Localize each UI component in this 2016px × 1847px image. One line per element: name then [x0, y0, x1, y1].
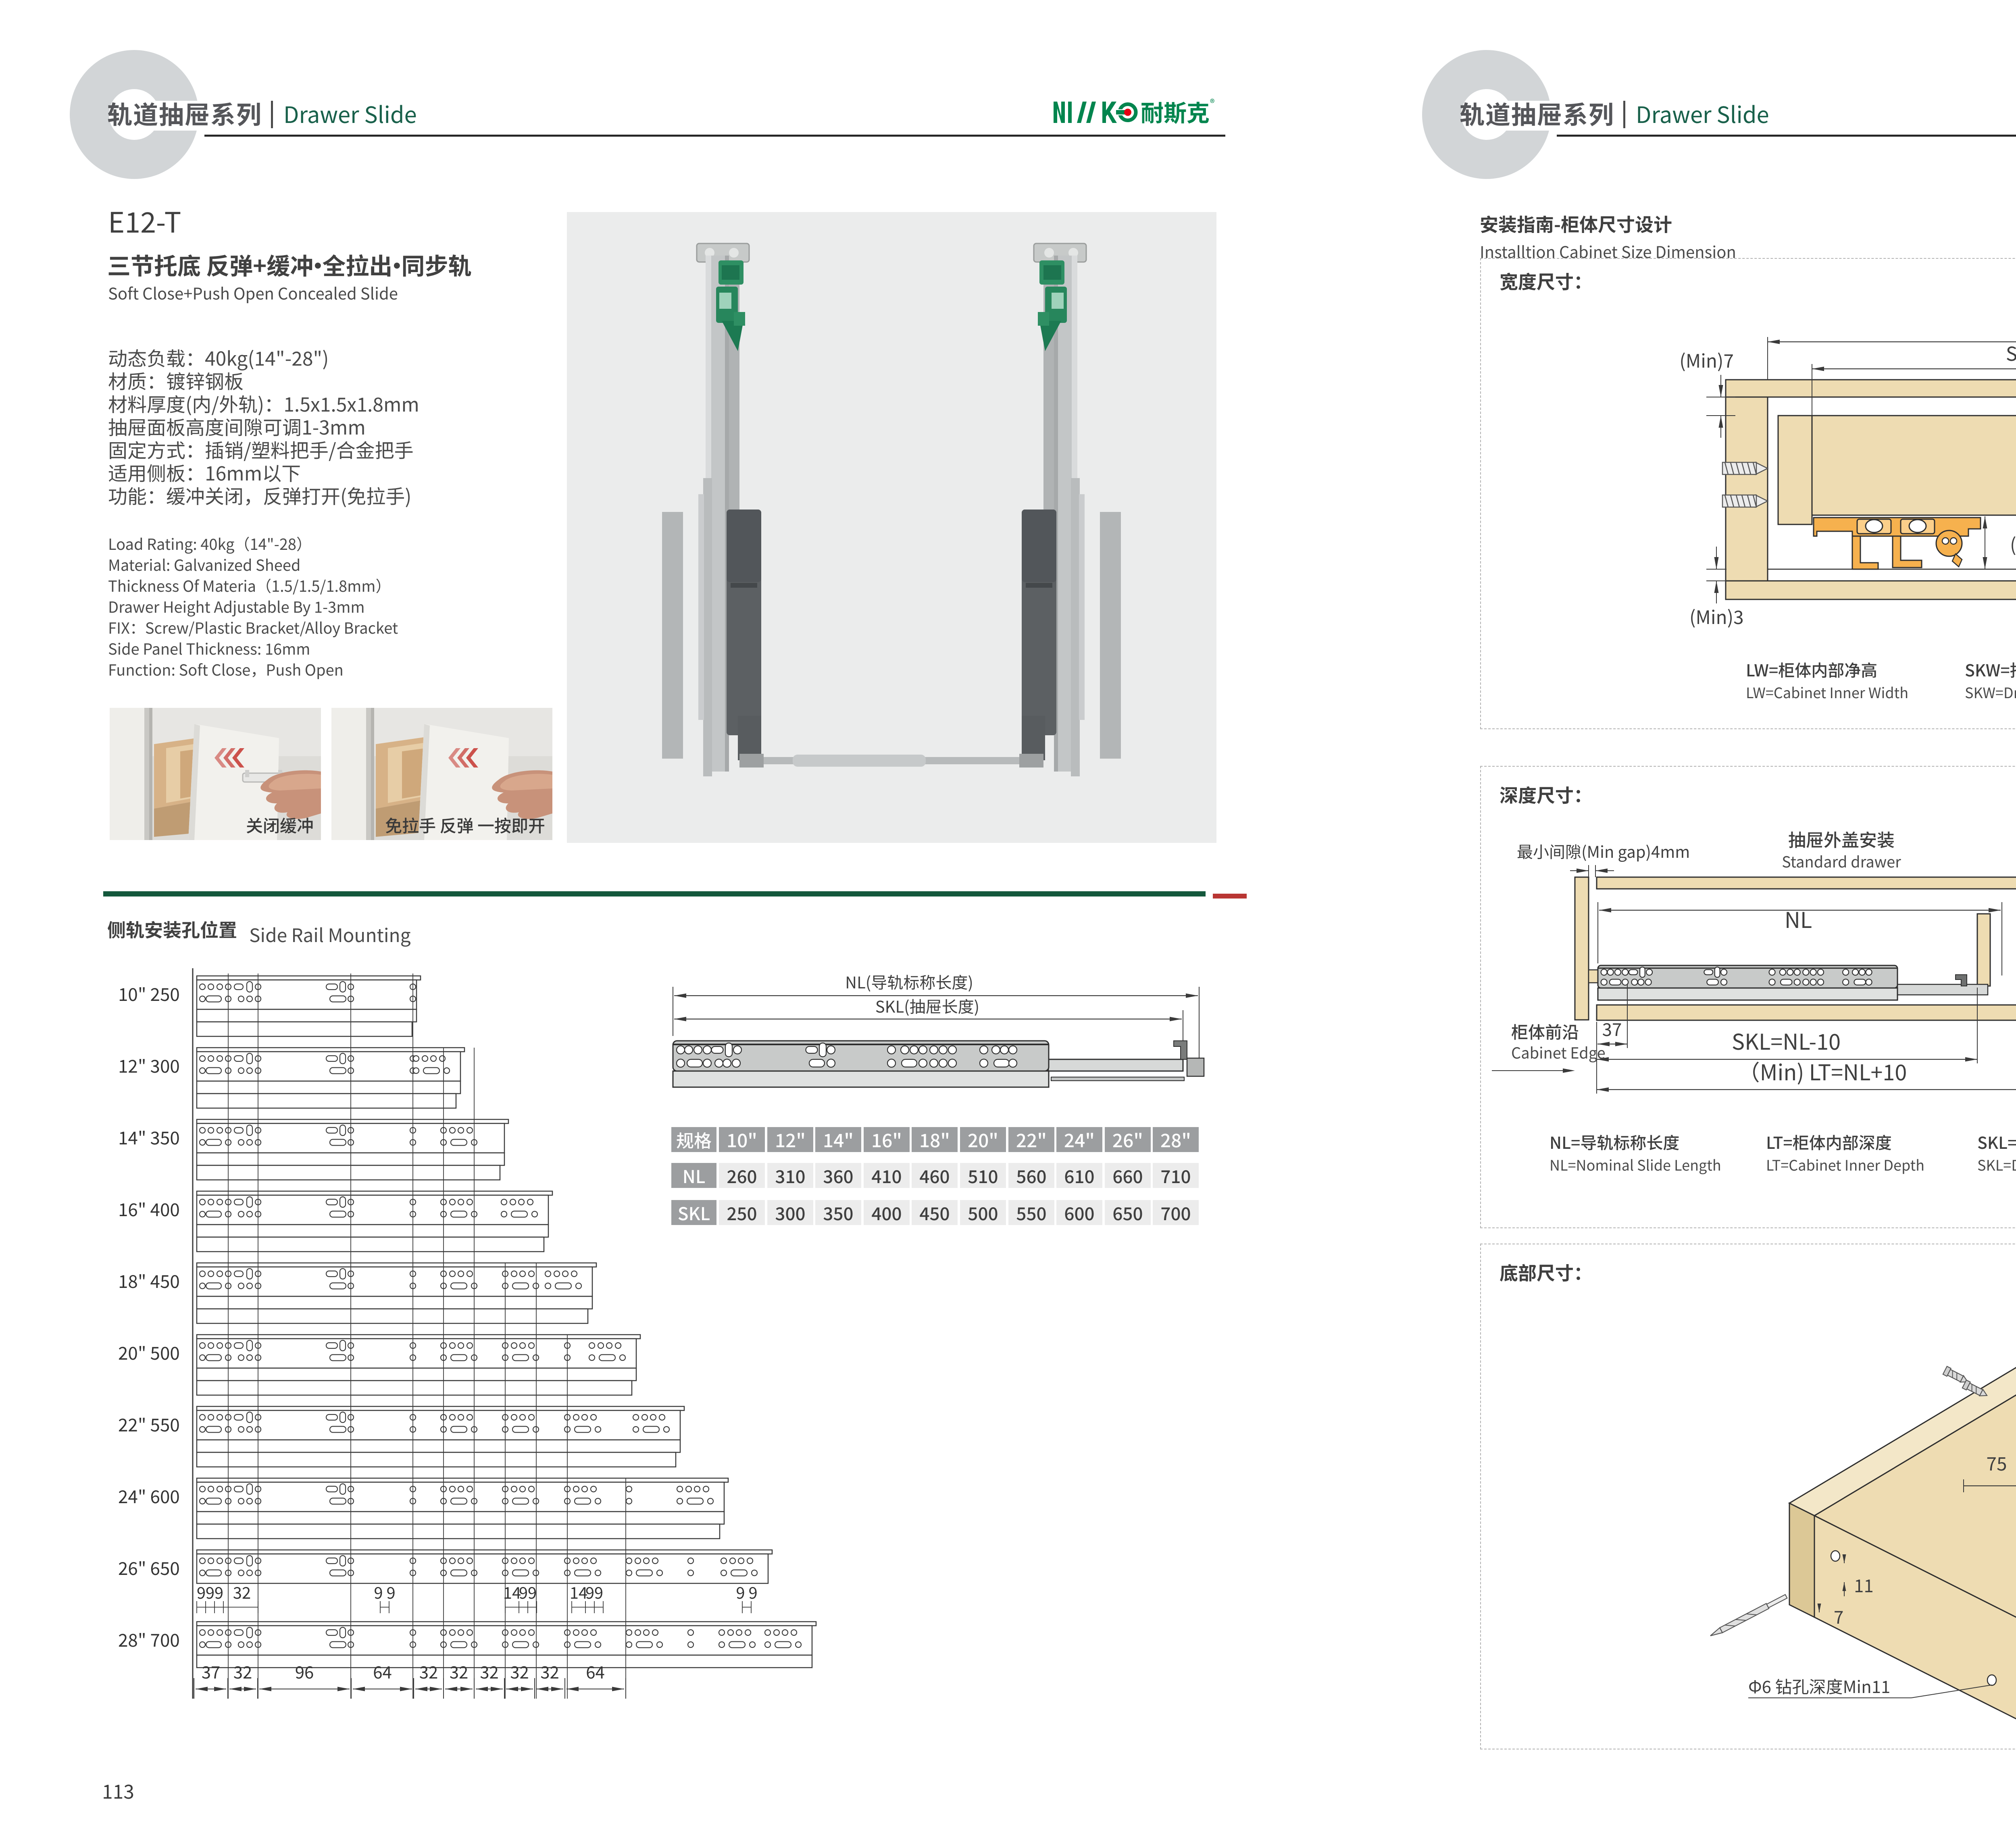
svg-text:Drawer Slide: Drawer Slide	[1636, 97, 1769, 130]
svg-text:免拉手 反弹 一按即开: 免拉手 反弹 一按即开	[385, 813, 545, 837]
svg-text:32: 32	[233, 1580, 251, 1604]
svg-text:NL: NL	[1785, 903, 1812, 934]
svg-text:（Min) LT=NL+10: （Min) LT=NL+10	[1738, 1055, 1907, 1087]
svg-text:22" 550: 22" 550	[118, 1411, 180, 1437]
svg-text:9: 9	[215, 1580, 223, 1604]
svg-text:75: 75	[1986, 1450, 2007, 1476]
svg-text:抽屉外盖安装: 抽屉外盖安装	[1788, 826, 1895, 852]
svg-text:20" 500: 20" 500	[118, 1339, 180, 1365]
svg-text:SKL(抽屉长度): SKL(抽屉长度)	[875, 994, 979, 1017]
svg-text:32: 32	[480, 1659, 499, 1684]
svg-text:37: 37	[202, 1659, 221, 1684]
svg-text:轨道抽屉系列: 轨道抽屉系列	[107, 95, 262, 131]
svg-text:SKL=抽屉长度: SKL=抽屉长度	[1977, 1129, 2016, 1154]
svg-text:14: 14	[503, 1580, 521, 1604]
svg-text:64: 64	[586, 1659, 605, 1684]
svg-text:(Min)7: (Min)7	[1679, 347, 1734, 373]
svg-text:12" 300: 12" 300	[118, 1052, 180, 1078]
svg-text:SKW=LW-42: SKW=LW-42	[2006, 338, 2016, 366]
svg-text:LT=Cabinet Inner Depth: LT=Cabinet Inner Depth	[1766, 1154, 1924, 1175]
svg-text:37: 37	[1602, 1015, 1622, 1041]
svg-text:NL=导轨标称长度: NL=导轨标称长度	[1549, 1129, 1679, 1154]
svg-text:14" 350: 14" 350	[118, 1124, 180, 1150]
svg-text:SKL=NL-10: SKL=NL-10	[1732, 1024, 1841, 1056]
svg-text:最小间隙(Min gap)4mm: 最小间隙(Min gap)4mm	[1517, 839, 1690, 863]
svg-text:LT=柜体内部深度: LT=柜体内部深度	[1766, 1129, 1892, 1154]
svg-text:LW=Cabinet Inner Width: LW=Cabinet Inner Width	[1746, 682, 1908, 703]
svg-text:LW=柜体内部净高: LW=柜体内部净高	[1746, 657, 1877, 681]
svg-text:14: 14	[570, 1580, 587, 1604]
svg-text:32: 32	[450, 1659, 469, 1684]
svg-text:(Min)3: (Min)3	[1689, 603, 1744, 630]
svg-text:9 9: 9 9	[736, 1580, 757, 1604]
svg-text:11: 11	[1854, 1572, 1874, 1597]
svg-text:SKW=抽屉宽度: SKW=抽屉宽度	[1965, 657, 2016, 681]
svg-text:16" 400: 16" 400	[118, 1196, 180, 1221]
svg-text:9: 9	[197, 1580, 206, 1604]
svg-text:32: 32	[510, 1659, 529, 1684]
svg-text:18" 450: 18" 450	[118, 1267, 180, 1293]
svg-text:64: 64	[373, 1659, 392, 1684]
svg-text:9 9: 9 9	[374, 1580, 395, 1604]
svg-text:关闭缓冲: 关闭缓冲	[246, 813, 314, 837]
svg-text:32: 32	[233, 1659, 252, 1684]
svg-text:NL=Nominal Slide Length: NL=Nominal Slide Length	[1549, 1154, 1721, 1175]
svg-text:SKL=Drawer Length: SKL=Drawer Length	[1977, 1154, 2016, 1175]
svg-text:(Min)27.5: (Min)27.5	[2010, 530, 2016, 557]
svg-text:柜体前沿: 柜体前沿	[1511, 1019, 1579, 1044]
svg-text:Standard drawer: Standard drawer	[1782, 850, 1901, 872]
svg-text:7: 7	[1834, 1603, 1843, 1629]
svg-text:24" 600: 24" 600	[118, 1483, 180, 1508]
svg-text:10" 250: 10" 250	[118, 980, 180, 1006]
svg-text:®: ®	[1210, 95, 1214, 109]
svg-text:9: 9	[585, 1580, 594, 1604]
svg-text:轨道抽屉系列: 轨道抽屉系列	[1460, 95, 1614, 131]
svg-text:26" 650: 26" 650	[118, 1554, 180, 1580]
svg-text:Φ6 钻孔深度Min11: Φ6 钻孔深度Min11	[1748, 1674, 1890, 1698]
svg-text:9: 9	[206, 1580, 215, 1604]
svg-text:SKW=Drawer Width: SKW=Drawer Width	[1965, 682, 2016, 703]
svg-text:9: 9	[594, 1580, 603, 1604]
svg-text:32: 32	[540, 1659, 559, 1684]
svg-text:耐斯克: 耐斯克	[1141, 95, 1210, 128]
svg-text:Cabinet Edge: Cabinet Edge	[1511, 1041, 1606, 1063]
svg-text:NL(导轨标称长度): NL(导轨标称长度)	[845, 970, 973, 993]
svg-text:Drawer Slide: Drawer Slide	[283, 97, 417, 130]
svg-text:9: 9	[519, 1580, 528, 1604]
svg-text:9: 9	[528, 1580, 537, 1604]
svg-text:28" 700: 28" 700	[118, 1626, 180, 1652]
svg-text:96: 96	[295, 1659, 314, 1684]
svg-text:32: 32	[419, 1659, 438, 1684]
